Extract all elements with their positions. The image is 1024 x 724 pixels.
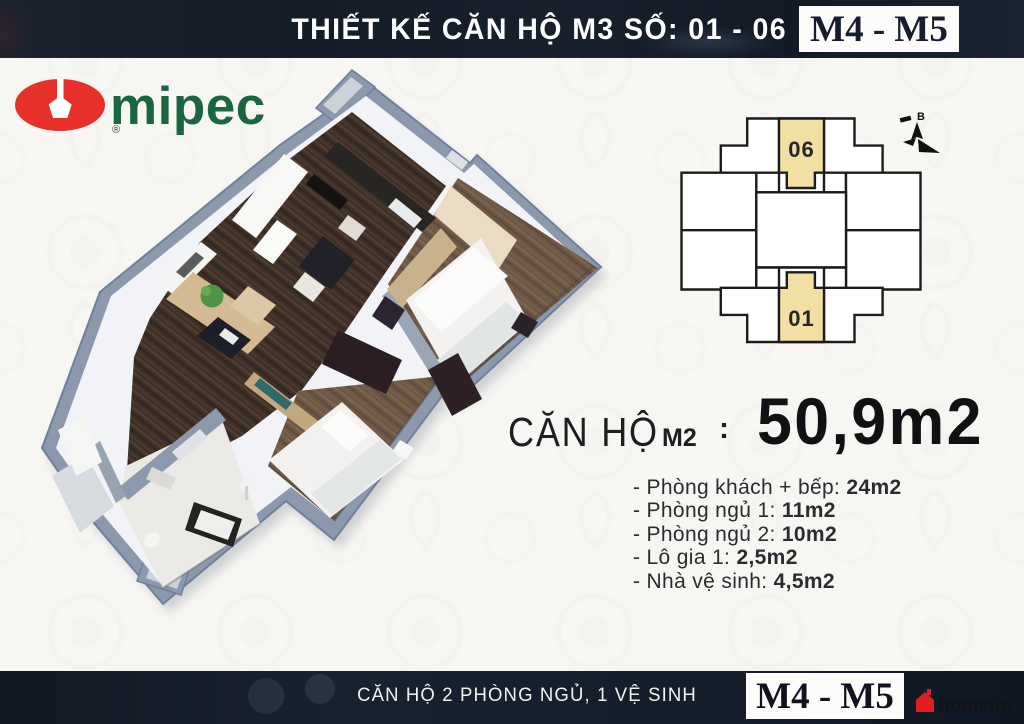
svg-text:06: 06: [788, 137, 814, 162]
svg-text:01: 01: [788, 306, 814, 331]
svg-text:homeup: homeup: [938, 695, 1012, 716]
svg-text:B: B: [917, 111, 925, 123]
